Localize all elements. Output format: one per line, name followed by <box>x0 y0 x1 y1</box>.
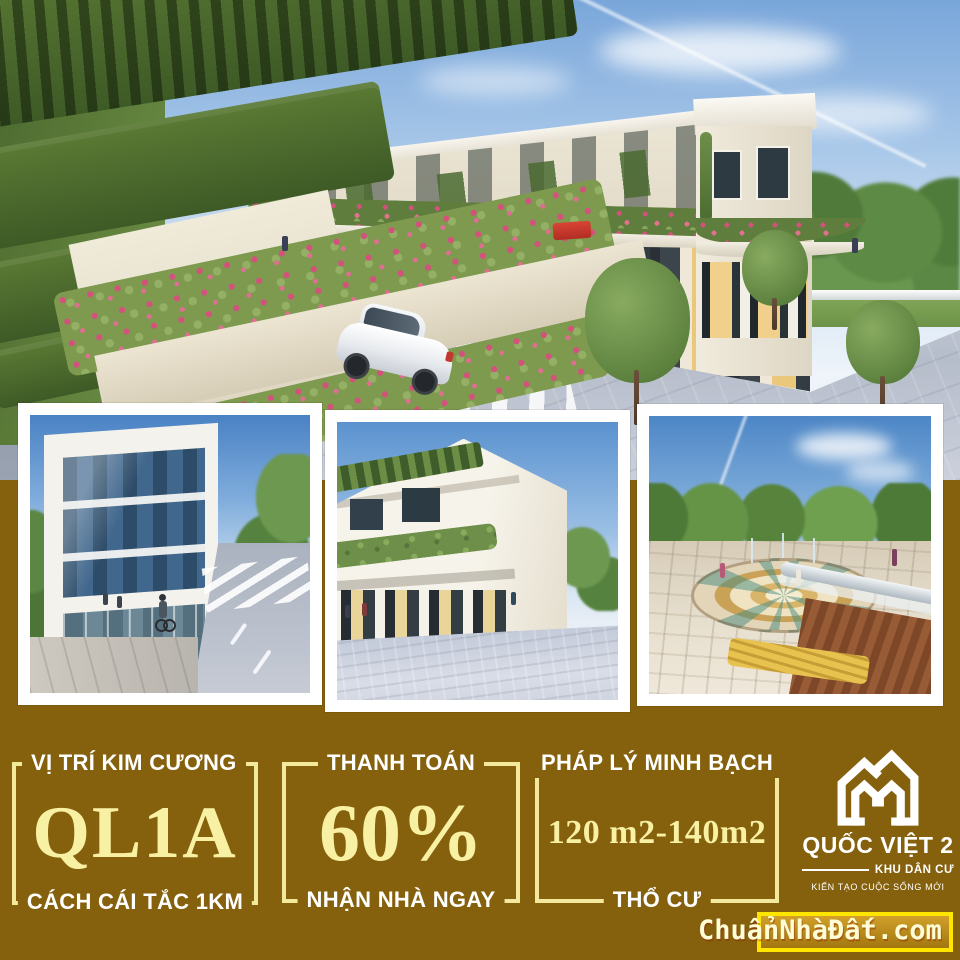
window <box>350 499 383 530</box>
stat-legal-value: 120 m2-140m2 <box>539 766 775 899</box>
street-tree <box>585 258 690 383</box>
photo-glass-office <box>18 403 322 705</box>
fountain-jet <box>751 538 753 563</box>
window <box>756 146 790 200</box>
photo-plaza-park <box>637 404 943 706</box>
pedestrian-figure <box>511 592 516 605</box>
stat-payment-value: 60% <box>286 766 516 899</box>
divider-line <box>802 869 869 871</box>
project-subtitle: KHU DÂN CƯ <box>875 864 954 876</box>
project-logo: QUỐC VIỆT 2 KHU DÂN CƯ KIẾN TẠO CUỘC SỐN… <box>802 744 954 892</box>
real-estate-poster: VỊ TRÍ KIM CƯƠNG QL1A CÁCH CÁI TẮC 1KM T… <box>0 0 960 960</box>
car-taillight <box>445 351 454 362</box>
cloud <box>600 28 840 74</box>
photo-glass-office-scene <box>30 415 310 693</box>
sidewalk <box>30 637 198 693</box>
tree-trunk <box>772 298 777 330</box>
photo-plaza-park-scene <box>649 416 931 694</box>
stat-location-note: CÁCH CÁI TẮC 1KM <box>18 887 252 917</box>
pedestrian-figure <box>117 596 122 608</box>
stat-location-value: QL1A <box>16 766 254 901</box>
glass-curtain-wall <box>63 447 205 597</box>
child-figure <box>796 569 801 586</box>
street-tree <box>846 300 920 384</box>
balcony-shadow <box>337 568 516 591</box>
project-subtitle-row: KHU DÂN CƯ <box>802 864 954 876</box>
fountain-jet <box>813 538 815 563</box>
pedestrian-figure <box>852 238 858 253</box>
cloud <box>420 66 570 96</box>
pedestrian-figure <box>345 605 350 618</box>
stat-payment: THANH TOÁN 60% NHẬN NHÀ NGAY <box>282 762 520 903</box>
pedestrian-figure <box>103 593 108 605</box>
vine-column <box>700 132 712 222</box>
window <box>402 488 440 522</box>
pedestrian-figure <box>892 549 897 566</box>
cyclist-figure <box>159 601 167 618</box>
stat-legal: PHÁP LÝ MINH BẠCH 120 m2-140m2 THỔ CƯ <box>535 762 779 903</box>
project-name: QUỐC VIỆT 2 <box>802 832 954 859</box>
photo-corner-shophouse <box>325 410 630 712</box>
cloud <box>796 433 892 461</box>
stat-legal-note: THỔ CƯ <box>604 885 711 915</box>
cloud <box>846 460 914 482</box>
photo-corner-shophouse-scene <box>337 422 618 700</box>
pedestrian-figure <box>362 603 367 616</box>
pedestrian-figure <box>720 563 725 578</box>
stat-payment-note: NHẬN NHÀ NGAY <box>298 885 505 915</box>
project-tagline: KIẾN TẠO CUỘC SỐNG MỚI <box>802 882 954 892</box>
red-minibus <box>552 221 591 241</box>
cyclist-figure <box>282 236 288 251</box>
stat-location: VỊ TRÍ KIM CƯƠNG QL1A CÁCH CÁI TẮC 1KM <box>12 762 258 905</box>
street-tree <box>742 230 808 306</box>
watermark-text: ChuẩnNhàĐất.com <box>698 915 942 946</box>
double-house-logo-icon <box>828 744 928 830</box>
fountain-jet <box>782 533 784 558</box>
window <box>712 150 742 200</box>
